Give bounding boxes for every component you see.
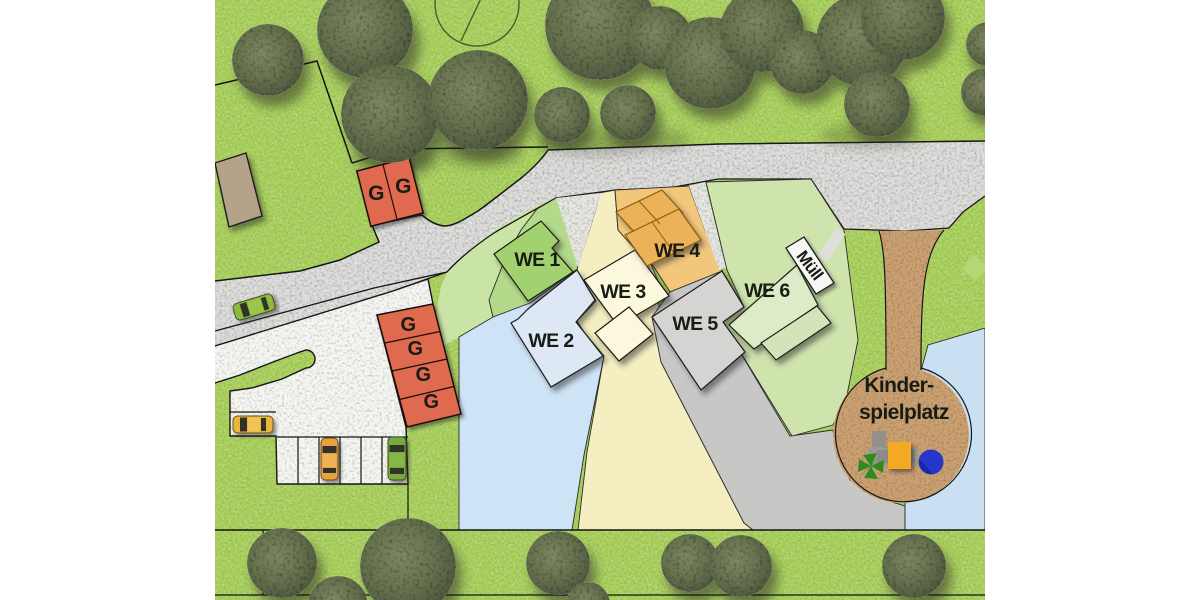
svg-text:WE 6: WE 6 [744,280,790,302]
svg-text:G: G [424,391,439,413]
svg-text:G: G [416,364,431,386]
svg-text:spielplatz: spielplatz [859,401,949,424]
svg-text:Kinder-: Kinder- [864,374,934,397]
svg-text:G: G [401,314,416,336]
svg-text:WE 3: WE 3 [600,281,646,303]
svg-text:WE 2: WE 2 [528,330,574,352]
svg-text:WE 5: WE 5 [672,313,718,335]
svg-text:WE 4: WE 4 [654,240,700,262]
svg-text:G: G [368,182,384,205]
svg-text:WE 1: WE 1 [514,249,560,271]
svg-text:G: G [408,338,423,360]
svg-text:G: G [395,175,411,198]
